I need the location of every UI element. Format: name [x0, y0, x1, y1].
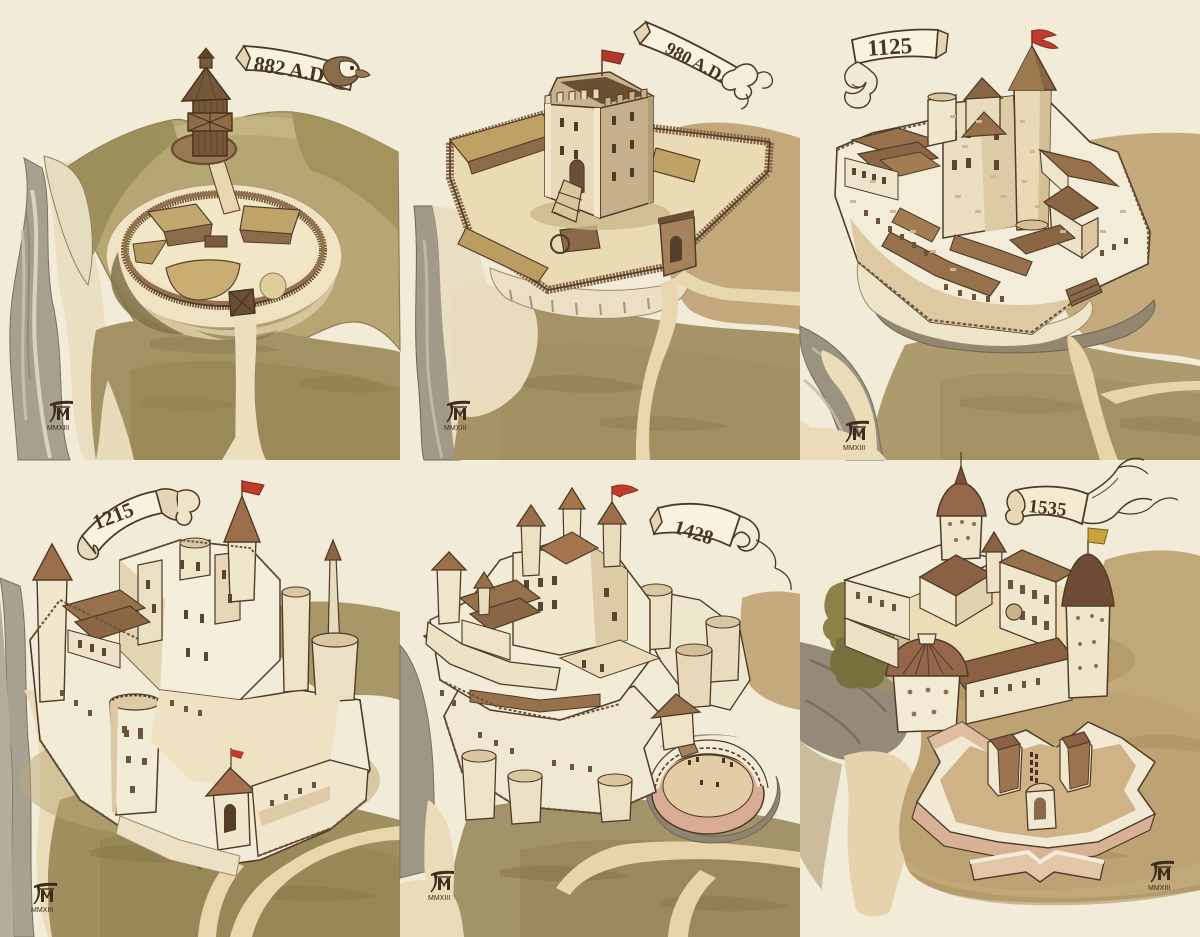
svg-text:MMXIII: MMXIII	[47, 425, 69, 432]
svg-text:1535: 1535	[1027, 496, 1067, 521]
svg-text:MMXIII: MMXIII	[428, 895, 450, 902]
svg-text:1125: 1125	[867, 33, 913, 61]
svg-text:MMXIII: MMXIII	[1148, 885, 1170, 892]
svg-text:MMXIII: MMXIII	[444, 425, 466, 432]
svg-text:MMXIII: MMXIII	[31, 907, 53, 914]
svg-text:MMXIII: MMXIII	[843, 445, 865, 452]
